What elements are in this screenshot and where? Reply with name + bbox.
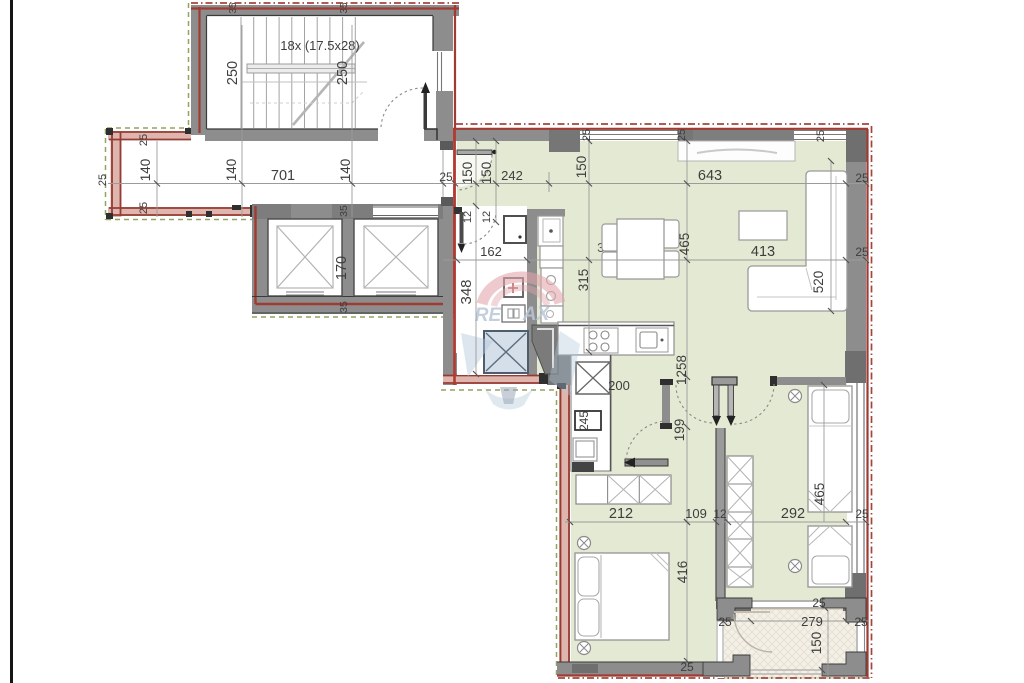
svg-text:701: 701: [271, 168, 295, 184]
svg-text:140: 140: [138, 159, 153, 182]
svg-text:348: 348: [458, 279, 475, 304]
svg-text:25: 25: [815, 130, 827, 142]
svg-text:150: 150: [574, 156, 589, 179]
svg-text:279: 279: [801, 614, 823, 629]
svg-text:RE: RE: [475, 305, 503, 326]
svg-text:25: 25: [812, 596, 826, 610]
svg-text:25: 25: [138, 202, 150, 214]
svg-text:25: 25: [855, 245, 869, 259]
svg-text:315: 315: [576, 269, 591, 292]
svg-text:150: 150: [809, 632, 824, 655]
svg-text:AX: AX: [522, 304, 551, 325]
svg-text:199: 199: [672, 419, 687, 442]
svg-text:212: 212: [609, 506, 633, 522]
svg-text:25: 25: [439, 170, 453, 184]
svg-text:292: 292: [781, 506, 805, 522]
svg-text:162: 162: [480, 244, 502, 259]
svg-text:25: 25: [581, 129, 593, 141]
svg-text:150: 150: [460, 162, 475, 185]
svg-text:643: 643: [698, 168, 722, 184]
svg-text:416: 416: [675, 561, 690, 584]
svg-text:140: 140: [338, 159, 353, 182]
svg-text:140: 140: [224, 159, 239, 182]
svg-text:1258: 1258: [674, 355, 689, 385]
svg-text:413: 413: [751, 244, 775, 260]
svg-text:25: 25: [138, 134, 150, 146]
svg-text:25: 25: [97, 174, 109, 186]
svg-text:12: 12: [462, 211, 474, 223]
svg-text:250: 250: [225, 61, 241, 85]
svg-text:242: 242: [501, 168, 523, 183]
svg-text:12: 12: [713, 507, 727, 521]
svg-text:250: 250: [335, 61, 351, 85]
svg-text:35: 35: [338, 301, 350, 313]
svg-text:35: 35: [228, 2, 239, 14]
svg-text:25: 25: [676, 129, 688, 141]
svg-text:245: 245: [577, 411, 591, 431]
svg-text:35: 35: [339, 2, 350, 14]
svg-text:12: 12: [481, 211, 493, 223]
svg-text:25: 25: [854, 615, 868, 629]
svg-text:35: 35: [338, 205, 350, 217]
svg-text:200: 200: [608, 378, 630, 393]
svg-text:25: 25: [855, 171, 869, 185]
svg-text:170: 170: [334, 256, 350, 280]
svg-text:465: 465: [812, 483, 827, 506]
svg-text:150: 150: [479, 162, 494, 185]
svg-text:25: 25: [718, 615, 732, 629]
svg-text:25: 25: [855, 507, 869, 521]
svg-text:18x (17.5x28): 18x (17.5x28): [280, 38, 360, 53]
svg-text:465: 465: [677, 233, 692, 256]
svg-text:25: 25: [680, 660, 694, 674]
svg-text:109: 109: [685, 506, 707, 521]
svg-text:520: 520: [811, 271, 826, 294]
